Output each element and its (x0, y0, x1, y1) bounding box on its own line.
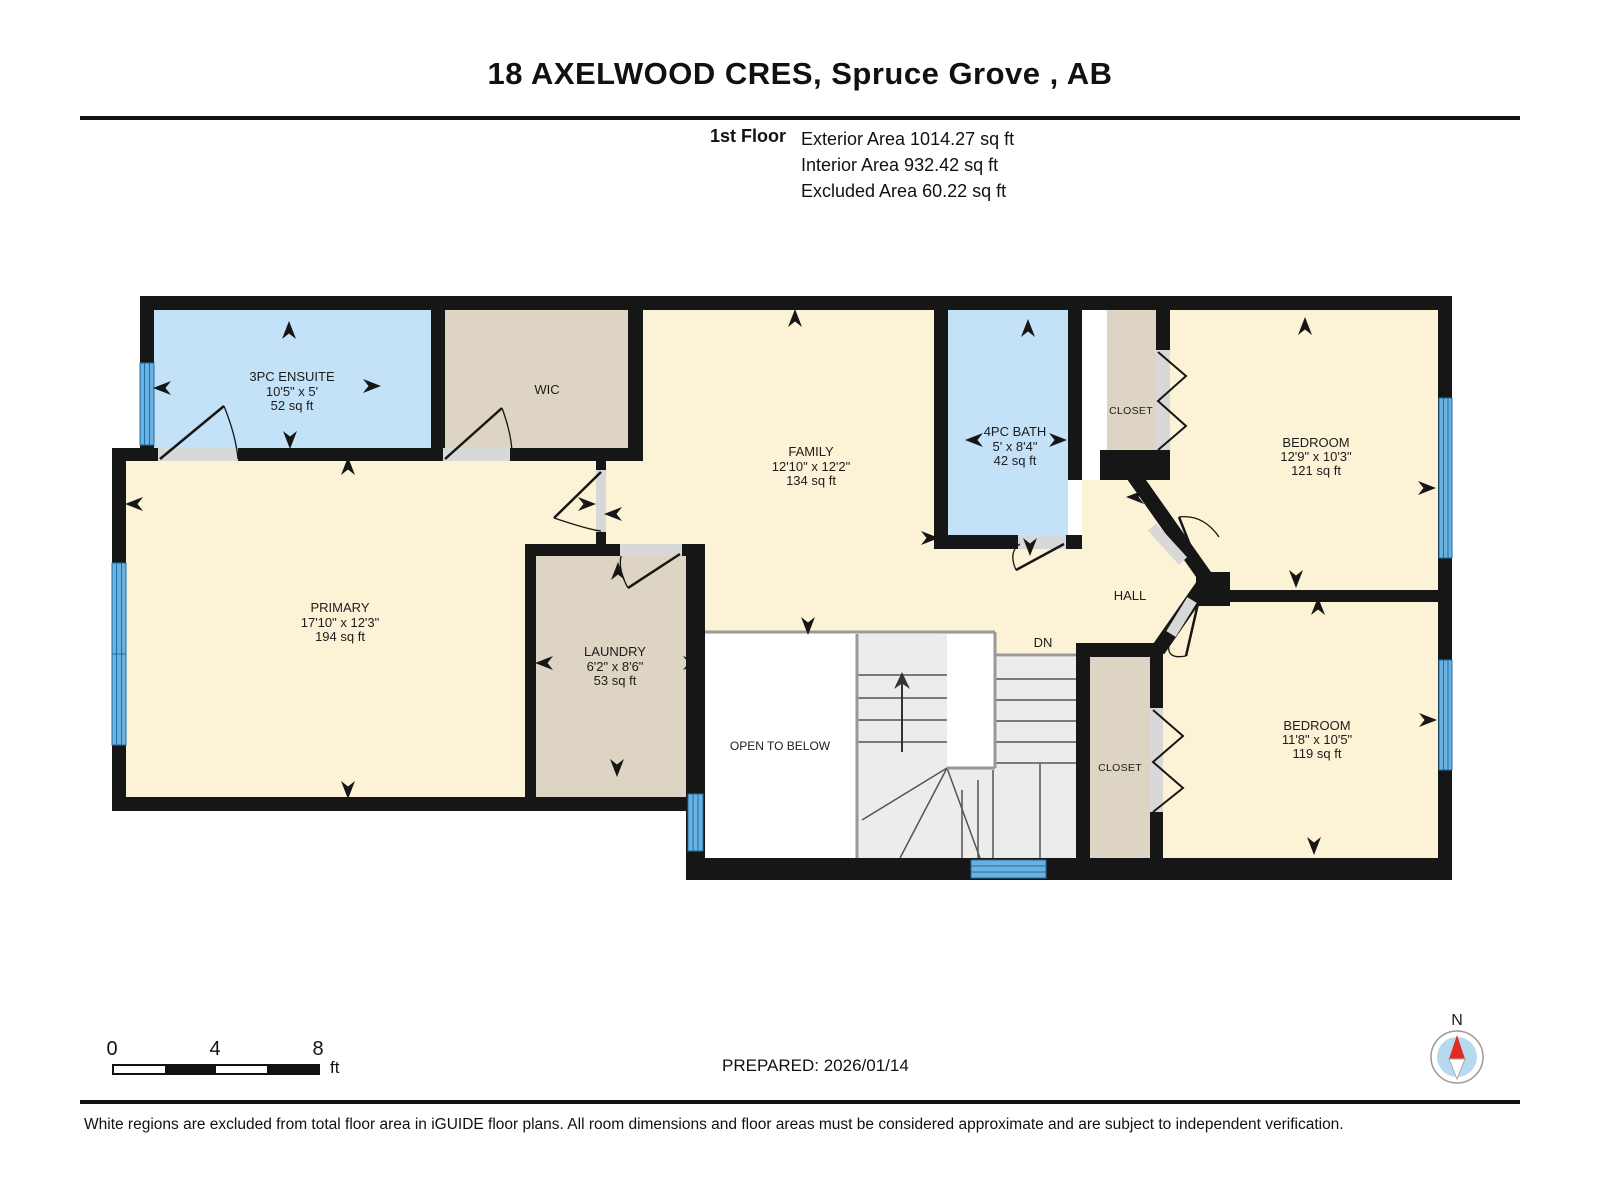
area-summary: Exterior Area 1014.27 sq ft Interior Are… (801, 126, 1014, 204)
window-bottom-wall (971, 860, 1046, 878)
label-primary-dims: 17'10" x 12'3" (301, 615, 380, 630)
label-ensuite-dims: 10'5" x 5' (266, 384, 318, 399)
scale-tick-8: 8 (308, 1038, 328, 1061)
window-bedroom-bottom (1439, 660, 1452, 770)
floorplan-drawing: 3PC ENSUITE 10'5" x 5' 52 sq ft WIC FAMI… (100, 290, 1470, 890)
label-bath-name: 4PC BATH (984, 424, 1047, 439)
window-primary (112, 563, 126, 745)
label-laundry-name: LAUNDRY (584, 644, 646, 659)
prepared-date: PREPARED: 2026/01/14 (722, 1056, 909, 1076)
label-primary-area: 194 sq ft (315, 629, 365, 644)
scale-unit: ft (330, 1058, 339, 1078)
stair-winder-shape (947, 768, 995, 858)
label-bath-area: 42 sq ft (994, 453, 1037, 468)
label-family-name: FAMILY (788, 444, 834, 459)
room-closet-top-shape (1107, 310, 1156, 450)
label-bedroom-bottom-area: 119 sq ft (1293, 746, 1342, 761)
footer-divider (80, 1100, 1520, 1104)
label-family-dims: 12'10" x 12'2" (772, 459, 851, 474)
compass-north-label: N (1451, 1012, 1463, 1029)
stair-flight-down-shape (995, 657, 1090, 858)
scale-tick-4: 4 (205, 1038, 225, 1061)
room-bath-shape (948, 310, 1068, 535)
scale-bar-segment (216, 1066, 267, 1073)
label-bedroom-top-dims: 12'9" x 10'3" (1280, 449, 1352, 464)
scale-bar (112, 1064, 320, 1075)
window-stairwell (688, 794, 703, 851)
label-bedroom-bottom-name: BEDROOM (1283, 718, 1350, 733)
floor-label: 1st Floor (638, 126, 786, 147)
label-ensuite-area: 52 sq ft (271, 398, 314, 413)
label-stairs-dn: DN (1034, 635, 1053, 650)
label-wic-name: WIC (534, 382, 559, 397)
label-laundry-area: 53 sq ft (594, 673, 637, 688)
stair-opening-notch (947, 634, 995, 768)
compass: N (1418, 1008, 1496, 1092)
interior-area: Interior Area 932.42 sq ft (801, 152, 1014, 178)
disclaimer-text: White regions are excluded from total fl… (84, 1116, 1344, 1134)
label-bedroom-bottom-dims: 11'8" x 10'5" (1282, 732, 1353, 747)
scale-bar-segment (165, 1066, 216, 1073)
label-closet-bottom: CLOSET (1098, 762, 1142, 774)
scale-tick-0: 0 (102, 1038, 122, 1061)
label-bedroom-top-area: 121 sq ft (1291, 463, 1341, 478)
floorplan-page: 18 AXELWOOD CRES, Spruce Grove , AB 1st … (0, 0, 1600, 1200)
page-title: 18 AXELWOOD CRES, Spruce Grove , AB (0, 56, 1600, 92)
room-closet-bottom-shape (1090, 657, 1150, 858)
label-primary-name: PRIMARY (311, 600, 370, 615)
scale-bar-segment (267, 1066, 318, 1073)
header-divider (80, 116, 1520, 120)
label-bath-dims: 5' x 8'4" (993, 439, 1038, 454)
exterior-area: Exterior Area 1014.27 sq ft (801, 126, 1014, 152)
room-wic-shape (445, 310, 628, 448)
window-ensuite (140, 363, 154, 445)
scale-bar-segment (114, 1066, 165, 1073)
label-ensuite-name: 3PC ENSUITE (249, 369, 335, 384)
label-bedroom-top-name: BEDROOM (1282, 435, 1349, 450)
label-family-area: 134 sq ft (786, 473, 836, 488)
label-hall: HALL (1114, 588, 1147, 603)
room-fills (126, 310, 1438, 858)
excluded-area: Excluded Area 60.22 sq ft (801, 178, 1014, 204)
label-open-to-below: OPEN TO BELOW (730, 739, 831, 753)
window-bedroom-top (1439, 398, 1452, 558)
label-closet-top: CLOSET (1109, 405, 1153, 417)
label-laundry-dims: 6'2" x 8'6" (587, 659, 644, 674)
